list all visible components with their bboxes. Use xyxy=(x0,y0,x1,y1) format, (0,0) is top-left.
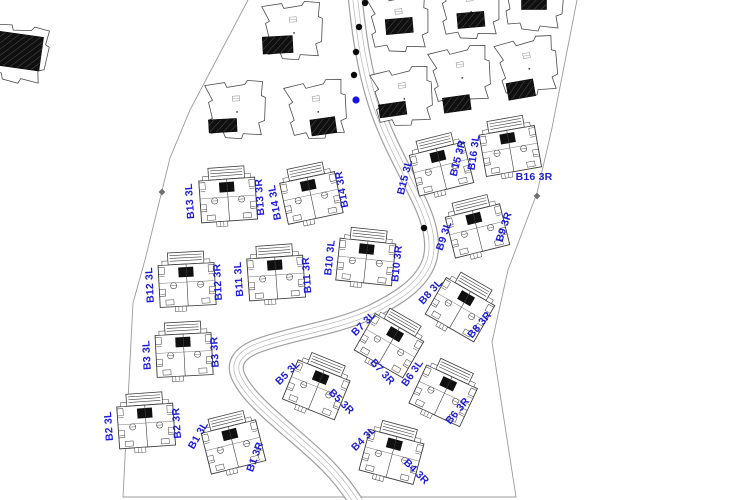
label-b10-3l: B10 3L xyxy=(322,239,338,276)
villa-building xyxy=(367,0,432,55)
villa-garage-hatch xyxy=(522,0,547,10)
building-b13 xyxy=(198,165,258,228)
blue-marker-dot xyxy=(352,96,359,103)
villa-building xyxy=(369,64,436,130)
label-b12-3l: B12 3L xyxy=(143,267,157,304)
villa-garage-hatch xyxy=(262,36,293,55)
villa-building xyxy=(504,0,564,31)
tree-dot xyxy=(356,24,362,30)
villa-building xyxy=(427,43,495,114)
building-b12 xyxy=(157,251,216,313)
label-b2-3l: B2 3L xyxy=(102,411,116,442)
plan-canvas: B13 3LB13 3RB14 3LB14 3RB15 3LB15 3RB16 … xyxy=(0,0,750,500)
label-b16-3r: B16 3R xyxy=(516,171,553,183)
building-b2 xyxy=(116,391,176,454)
building-b14 xyxy=(277,160,344,229)
villa-garage-hatch xyxy=(208,118,237,132)
villa-building xyxy=(438,0,503,42)
site-plan: B13 3LB13 3RB14 3LB14 3RB15 3LB15 3RB16 … xyxy=(0,0,750,500)
building-b11 xyxy=(246,243,306,306)
label-b11-3r: B11 3R xyxy=(300,257,315,294)
label-b11-3l: B11 3L xyxy=(232,261,246,297)
villa-building xyxy=(0,21,52,87)
tree-dot xyxy=(421,225,427,231)
villa-buildings xyxy=(0,0,564,143)
label-b16-3l: B16 3L xyxy=(466,134,483,171)
label-b13-3l: B13 3L xyxy=(183,183,197,220)
label-b2-3r: B2 3R xyxy=(170,407,184,439)
tree-dot xyxy=(362,0,368,6)
tree-dot xyxy=(353,49,359,55)
villa-garage-hatch xyxy=(310,117,337,136)
label-b3-3l: B3 3L xyxy=(140,340,154,371)
villa-garage-hatch xyxy=(385,17,413,34)
building-b3 xyxy=(154,321,213,383)
building-b10 xyxy=(335,226,397,291)
villa-garage-hatch xyxy=(0,31,44,71)
label-b3-3r: B3 3R xyxy=(208,336,222,368)
label-b10-3r: B10 3R xyxy=(389,245,405,283)
label-b12-3r: B12 3R xyxy=(211,263,225,301)
tree-dot xyxy=(351,72,357,78)
villa-building xyxy=(493,33,562,101)
villa-garage-hatch xyxy=(457,11,485,28)
villa-building xyxy=(283,77,350,143)
boundary-marker xyxy=(159,189,166,196)
villa-building xyxy=(205,79,268,140)
label-b13-3r: B13 3R xyxy=(253,178,268,216)
villa-building xyxy=(261,0,325,61)
